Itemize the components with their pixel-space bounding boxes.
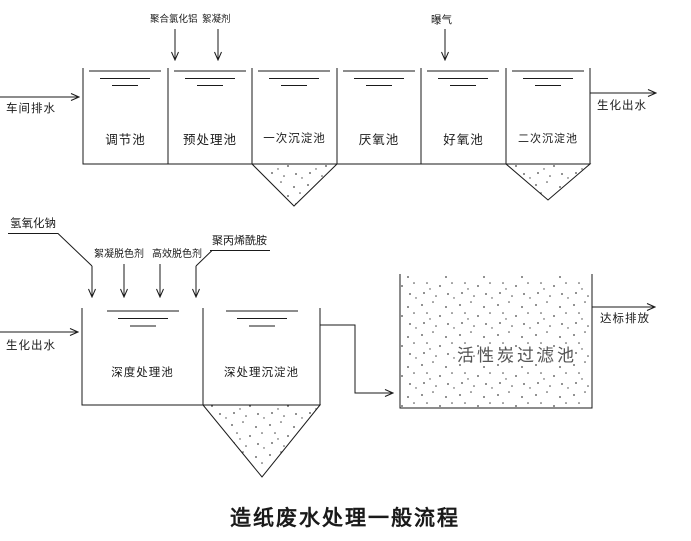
chemical-label-high-eff-decolorizer: 高效脱色剂 <box>152 249 202 261</box>
flow-diagram-lines <box>0 0 691 541</box>
stage1-tank-block <box>83 68 590 164</box>
diagram-title: 造纸废水处理一般流程 <box>165 506 525 530</box>
tank-label-advanced-treatment: 深度处理池 <box>82 367 203 380</box>
chemical-label-naoh: 氢氧化钠 <box>10 218 56 231</box>
activated-carbon-filter-tank <box>400 274 592 408</box>
tank-label-advanced-sedimentation: 深处理沉淀池 <box>203 367 320 380</box>
tank-label-secondary-sedimentation: 二次沉淀池 <box>506 133 590 146</box>
stage2-influent-label: 生化出水 <box>6 340 56 353</box>
chemical-label-pac: 聚合氯化铝 <box>150 15 198 26</box>
stage2-sludge-hopper <box>203 405 320 477</box>
paper-wastewater-flow-diagram: 聚合氯化铝 絮凝剂 曝气 车间排水 生化出水 调节池 预处理池 一次沉淀池 厌氧… <box>0 0 691 541</box>
stage1-effluent-label: 生化出水 <box>597 100 647 113</box>
tank-label-pretreatment: 预处理池 <box>168 133 252 147</box>
tank-label-aerobic: 好氧池 <box>421 133 506 147</box>
stage1-dosing-arrows <box>175 29 445 60</box>
stage1-flow-arrows <box>0 93 656 97</box>
tank-label-anaerobic: 厌氧池 <box>337 133 421 147</box>
stage2-tank-block <box>82 308 320 405</box>
stage1-influent-label: 车间排水 <box>6 103 56 116</box>
tank-label-regulating: 调节池 <box>83 133 168 147</box>
tank-label-primary-sedimentation: 一次沉淀池 <box>252 133 337 146</box>
stage1-sludge-hoppers <box>252 164 590 206</box>
tank-label-activated-carbon-filter: 活性炭过滤池 <box>437 346 597 366</box>
chemical-label-floc-decolorizer: 絮凝脱色剂 <box>94 249 144 261</box>
chemical-label-flocculant: 絮凝剂 <box>202 15 231 26</box>
stage2-effluent-label: 达标排放 <box>600 313 650 326</box>
chemical-label-aeration: 曝气 <box>431 14 452 26</box>
chemical-label-pam: 聚丙烯酰胺 <box>212 235 267 248</box>
